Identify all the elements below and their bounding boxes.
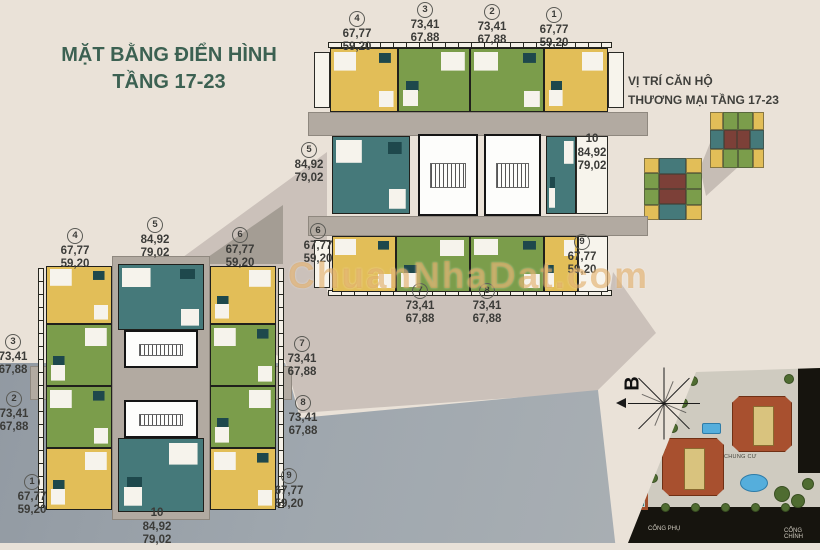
tower-a-core-1 [418,134,478,216]
label-tower-b-unit-1: 167,7759,20 [7,474,57,517]
gate-main-label: CỔNG CHÍNH [784,528,820,540]
tennis-court [608,484,648,510]
label-tower-b-unit-8: 873,4167,88 [278,395,328,438]
keyplan-title-line2: THƯƠNG MẠI TẦNG 17-23 [628,91,818,110]
tower-a-unit-1 [544,48,608,112]
site-road-right [798,368,820,473]
page-title-line2: TẦNG 17-23 [55,69,283,96]
label-tower-a-unit-4: 467,7759,20 [332,11,382,54]
tower-a-unit-4 [330,48,398,112]
label-tower-b-unit-4: 467,7759,20 [50,228,100,271]
tower-b-unit-3 [46,324,112,386]
label-tower-b-unit-7: 773,4167,88 [277,336,327,379]
page-title: MẶT BẰNG ĐIỂN HÌNH TẦNG 17-23 [55,42,283,96]
tower-b-core-2 [124,400,198,438]
page-title-line1: MẶT BẰNG ĐIỂN HÌNH [55,42,283,69]
label-tower-a-unit-2: 273,4167,88 [467,4,517,47]
label-tower-b-unit-9: 967,7759,20 [264,468,314,511]
tower-a-core-2 [484,134,541,216]
label-tower-b-unit-5: 584,9279,02 [130,217,180,260]
label-tower-b-unit-6: 667,7759,20 [215,227,265,270]
label-tower-b-unit-2: 273,4167,88 [0,391,39,434]
label-tower-a-unit-3: 373,4167,88 [400,2,450,45]
keyplan-tower-a [710,112,764,168]
keyplan-tower-b [644,158,702,220]
tower-b-unit-2 [46,386,112,448]
label-tower-a-unit-5: 584,9279,02 [284,142,334,185]
tower-a-unit-3 [398,48,470,112]
tower-a-corridor-bottom [308,216,648,236]
tower-a-unit-2 [470,48,544,112]
tower-b-unit-5 [118,264,204,330]
watermark: ChuanNhaDat.com [288,255,649,297]
compass-icon: B [614,366,714,450]
tower-b-unit-10 [118,438,204,512]
north-arrow-icon [616,398,626,408]
tower-b-plan [30,258,292,520]
keyplan-title: VỊ TRÍ CĂN HỘ THƯƠNG MẠI TẦNG 17-23 [628,72,818,110]
gate-secondary-label: CỔNG PHỤ [648,526,680,532]
tower-b-unit-6 [210,266,276,324]
north-label: B [622,376,645,390]
bottom-strip [0,543,820,550]
site-building-a [732,396,792,452]
tower-a-unit-5 [332,136,410,214]
label-tower-b-unit-10: 1084,9279,02 [132,507,182,547]
label-tower-a-unit-10: 1084,9279,02 [567,133,617,173]
floorplan-sheet: MẶT BẰNG ĐIỂN HÌNH TẦNG 17-23 VỊ TRÍ CĂN… [0,0,820,550]
tower-b-balconies-left [38,268,44,508]
tower-b-unit-7 [210,324,276,386]
keyplan-title-line1: VỊ TRÍ CĂN HỘ [628,72,818,91]
label-tower-b-unit-3: 373,4167,88 [0,334,38,377]
tower-b-unit-8 [210,386,276,448]
site-building-label: CHUNG CƯ [724,454,757,460]
label-tower-a-unit-1: 167,7759,20 [529,7,579,50]
tower-b-core-1 [124,330,198,368]
tower-b-unit-4 [46,266,112,324]
pool-ellipse [740,474,768,492]
